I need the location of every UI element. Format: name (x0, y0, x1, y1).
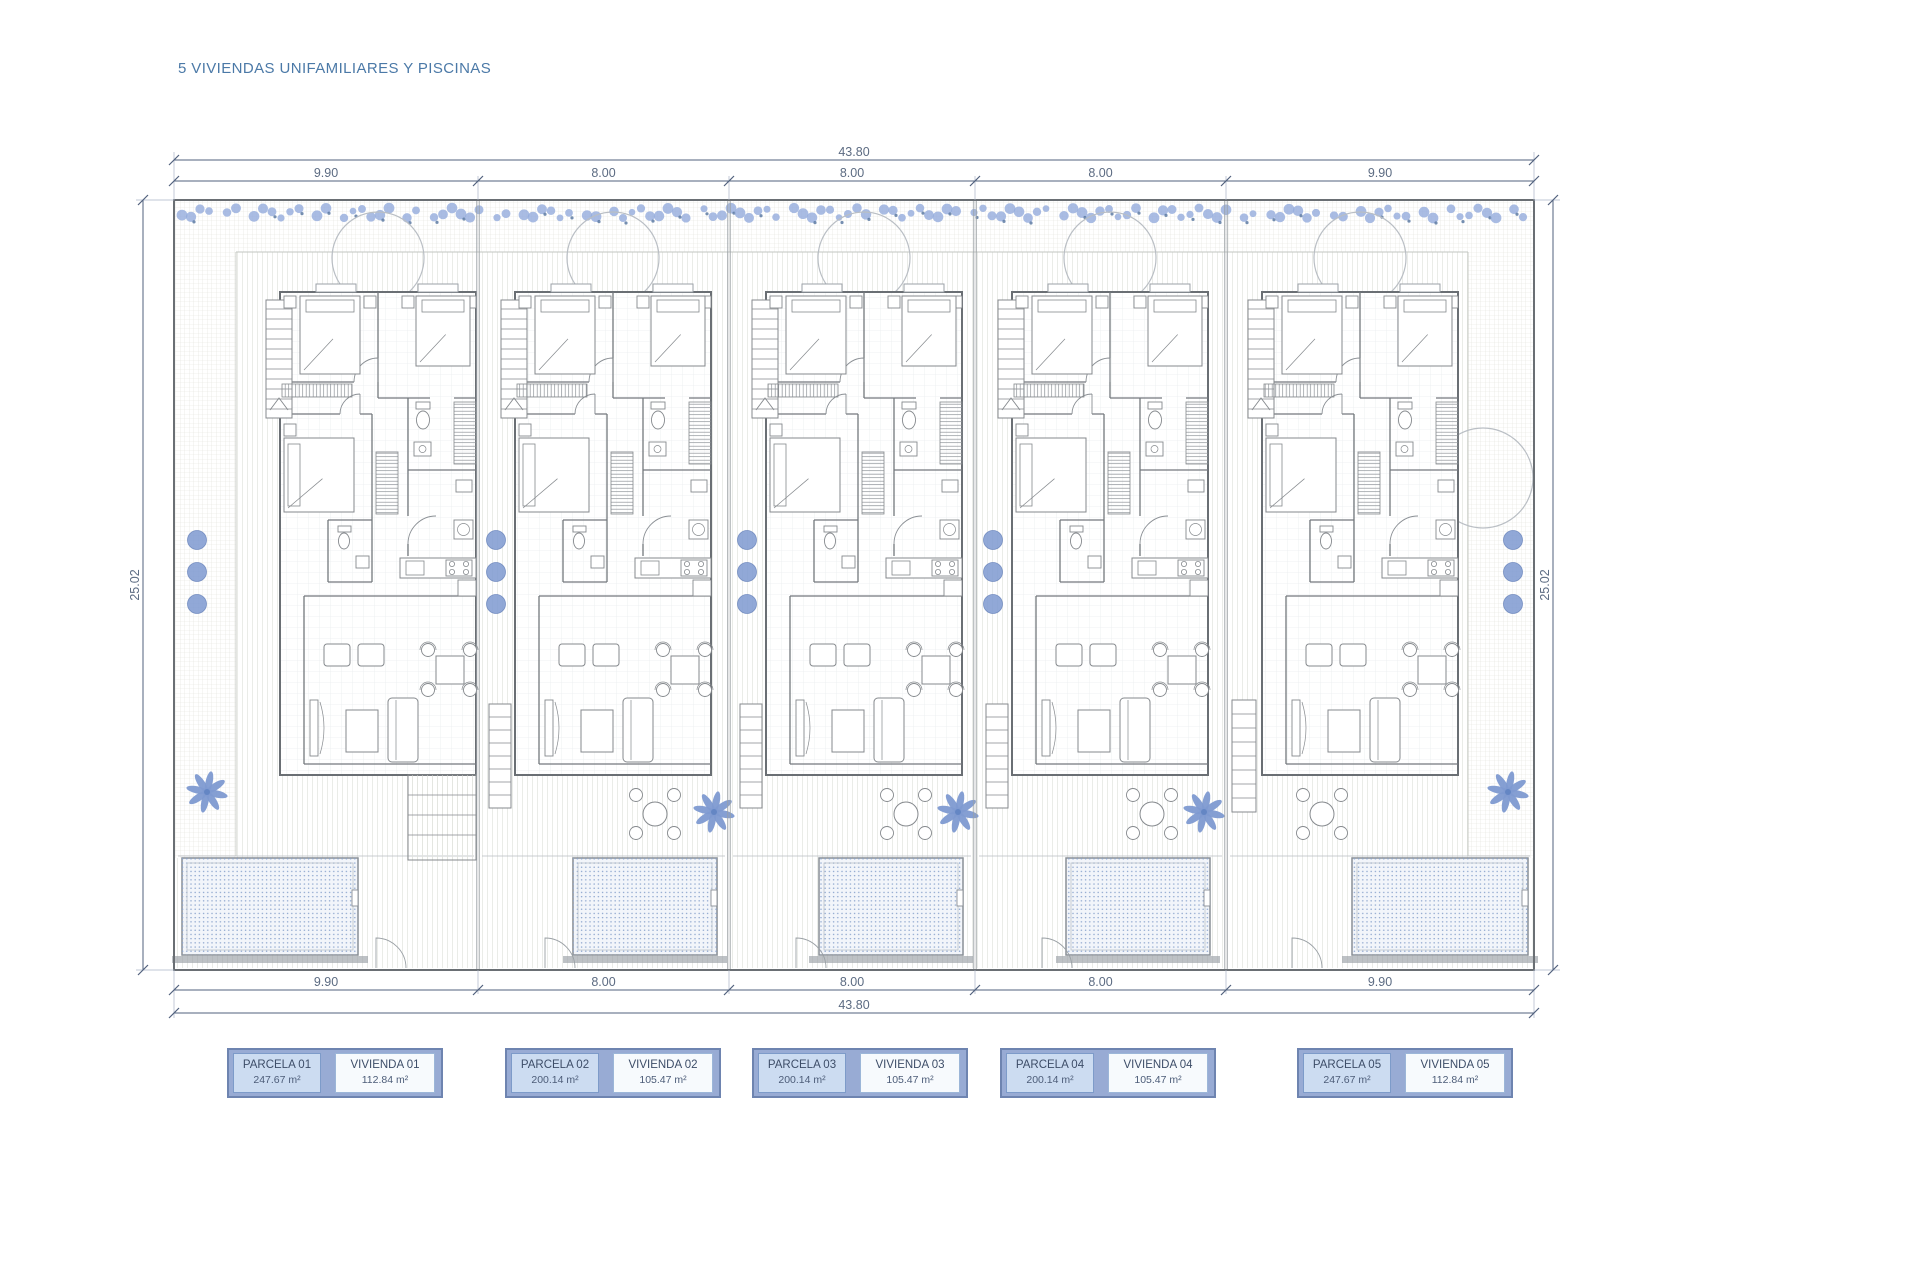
sink (1338, 556, 1351, 568)
chair (1196, 684, 1209, 697)
nightstand (1016, 296, 1028, 308)
chair (1404, 684, 1417, 697)
utility-sink (1438, 480, 1454, 492)
pool-ladder (711, 890, 717, 906)
tv-board (1042, 700, 1050, 756)
wardrobe (611, 452, 633, 514)
dimension-label: 25.02 (1538, 569, 1552, 600)
armchair (324, 644, 350, 666)
vivienda-03-area: 105.47 m² (861, 1074, 959, 1086)
staircase (1248, 300, 1274, 418)
wardrobe (940, 402, 962, 464)
nightstand (284, 296, 296, 308)
dimension-label: 9.90 (314, 166, 338, 180)
dining-table (1418, 656, 1446, 684)
wardrobe (768, 384, 838, 397)
bed (651, 296, 705, 366)
sink (414, 442, 431, 456)
sofa (1370, 698, 1400, 762)
toilet (1398, 402, 1412, 409)
sink (591, 556, 604, 568)
bed (786, 296, 846, 374)
dimension-label: 8.00 (1088, 975, 1112, 989)
washer (940, 520, 959, 539)
entry-steps (408, 775, 476, 860)
chair (657, 644, 670, 657)
nightstand (599, 296, 611, 308)
sink (649, 442, 666, 456)
sofa (388, 698, 418, 762)
armchair (810, 644, 836, 666)
bush-row-icon (984, 531, 1003, 614)
chair (950, 644, 963, 657)
vivienda-02-area: 105.47 m² (614, 1074, 712, 1086)
chair (422, 644, 435, 657)
pool-walkway (1056, 956, 1220, 963)
site-plan-page: 5 VIVIENDAS UNIFAMILIARES Y PISCINAS 43.… (0, 0, 1920, 1280)
parcela-01-box: PARCELA 01 247.67 m² (233, 1053, 321, 1093)
sofa (1120, 698, 1150, 762)
side-stairs (1232, 700, 1256, 812)
chair (1154, 684, 1167, 697)
chair (950, 684, 963, 697)
vivienda-02-box: VIVIENDA 02 105.47 m² (613, 1053, 713, 1093)
nightstand (1096, 296, 1108, 308)
wardrobe (1264, 384, 1334, 397)
tv-board (1292, 700, 1300, 756)
nightstand (770, 296, 782, 308)
chair (699, 684, 712, 697)
washer (1436, 520, 1455, 539)
utility-sink (691, 480, 707, 492)
armchair (559, 644, 585, 666)
vivienda-01-box: VIVIENDA 01 112.84 m² (335, 1053, 435, 1093)
bed (1016, 438, 1086, 512)
tv-board (310, 700, 318, 756)
bed (284, 438, 354, 512)
chair (464, 644, 477, 657)
parcela-04-label: PARCELA 04 (1007, 1059, 1093, 1071)
bed (1282, 296, 1342, 374)
sofa (623, 698, 653, 762)
parcela-05-box: PARCELA 05 247.67 m² (1303, 1053, 1391, 1093)
wardrobe (517, 384, 587, 397)
bed (519, 438, 589, 512)
nightstand (888, 296, 900, 308)
vivienda-02-label: VIVIENDA 02 (614, 1059, 712, 1071)
toilet (902, 402, 916, 409)
dining-table (1168, 656, 1196, 684)
pool-03 (809, 858, 973, 963)
nightstand (1016, 424, 1028, 436)
toilet (651, 402, 665, 409)
chair (1404, 644, 1417, 657)
sink (900, 442, 917, 456)
nightstand (1266, 296, 1278, 308)
nightstand (364, 296, 376, 308)
sink (356, 556, 369, 568)
dimension-label: 8.00 (591, 166, 615, 180)
parcela-05-label: PARCELA 05 (1304, 1059, 1390, 1071)
chair (908, 684, 921, 697)
armchair (1340, 644, 1366, 666)
toilet (824, 526, 837, 532)
coffee-table (1328, 710, 1360, 752)
vivienda-04-area: 105.47 m² (1109, 1074, 1207, 1086)
dimension-label: 8.00 (840, 166, 864, 180)
legend-group-03: PARCELA 03 200.14 m² VIVIENDA 03 105.47 … (752, 1048, 968, 1098)
utility-sink (1188, 480, 1204, 492)
sink (1088, 556, 1101, 568)
pool-04 (1056, 858, 1220, 963)
bush-row-icon (487, 531, 506, 614)
wardrobe (1358, 452, 1380, 514)
armchair (1306, 644, 1332, 666)
sink (1396, 442, 1413, 456)
toilet (1070, 526, 1083, 532)
parcela-02-label: PARCELA 02 (512, 1059, 598, 1071)
pool-ladder (957, 890, 963, 906)
dimension-label: 9.90 (1368, 975, 1392, 989)
dimension-label: 8.00 (591, 975, 615, 989)
pool-walkway (1342, 956, 1538, 963)
tv-board (796, 700, 804, 756)
nightstand (850, 296, 862, 308)
washer (689, 520, 708, 539)
parcela-05-area: 247.67 m² (1304, 1074, 1390, 1086)
washer (1186, 520, 1205, 539)
armchair (358, 644, 384, 666)
dining-table (436, 656, 464, 684)
chair (908, 644, 921, 657)
vivienda-05-label: VIVIENDA 05 (1406, 1059, 1504, 1071)
sink (842, 556, 855, 568)
nightstand (637, 296, 649, 308)
parcela-03-label: PARCELA 03 (759, 1059, 845, 1071)
dimension-label: 25.02 (128, 569, 142, 600)
dimension-label: 8.00 (1088, 166, 1112, 180)
pool-02 (563, 858, 727, 963)
plot-area (172, 200, 1538, 970)
nightstand (284, 424, 296, 436)
chair (1196, 644, 1209, 657)
wardrobe (282, 384, 352, 397)
parcela-03-box: PARCELA 03 200.14 m² (758, 1053, 846, 1093)
bed (1148, 296, 1202, 366)
vivienda-03-box: VIVIENDA 03 105.47 m² (860, 1053, 960, 1093)
nightstand (402, 296, 414, 308)
bush-row-icon (188, 531, 207, 614)
toilet (416, 402, 430, 409)
dimension-label: 9.90 (314, 975, 338, 989)
sofa (874, 698, 904, 762)
dimension-label: 43.80 (838, 145, 869, 159)
washer (454, 520, 473, 539)
pool-ladder (352, 890, 358, 906)
nightstand (519, 296, 531, 308)
bush-row-icon (738, 531, 757, 614)
bed (535, 296, 595, 374)
parcela-02-box: PARCELA 02 200.14 m² (511, 1053, 599, 1093)
vivienda-01-area: 112.84 m² (336, 1074, 434, 1086)
legend-group-05: PARCELA 05 247.67 m² VIVIENDA 05 112.84 … (1297, 1048, 1513, 1098)
wardrobe (862, 452, 884, 514)
armchair (1090, 644, 1116, 666)
utility-sink (456, 480, 472, 492)
pool-walkway (172, 956, 368, 963)
chair (464, 684, 477, 697)
bush-row-icon (1504, 531, 1523, 614)
sink (1146, 442, 1163, 456)
coffee-table (832, 710, 864, 752)
dimension-label: 8.00 (840, 975, 864, 989)
toilet (1320, 526, 1333, 532)
vivienda-05-box: VIVIENDA 05 112.84 m² (1405, 1053, 1505, 1093)
bed (1398, 296, 1452, 366)
legend-row: PARCELA 01 247.67 m² VIVIENDA 01 112.84 … (0, 1048, 1920, 1108)
vivienda-04-label: VIVIENDA 04 (1109, 1059, 1207, 1071)
parcela-04-area: 200.14 m² (1007, 1074, 1093, 1086)
parcela-04-box: PARCELA 04 200.14 m² (1006, 1053, 1094, 1093)
pool-walkway (809, 956, 973, 963)
chair (422, 684, 435, 697)
parcela-03-area: 200.14 m² (759, 1074, 845, 1086)
wardrobe (454, 402, 476, 464)
nightstand (1134, 296, 1146, 308)
staircase (501, 300, 527, 418)
vivienda-01-label: VIVIENDA 01 (336, 1059, 434, 1071)
bed (902, 296, 956, 366)
coffee-table (581, 710, 613, 752)
wardrobe (1186, 402, 1208, 464)
bed (416, 296, 470, 366)
parcela-02-area: 200.14 m² (512, 1074, 598, 1086)
staircase (998, 300, 1024, 418)
bed (1266, 438, 1336, 512)
chair (1154, 644, 1167, 657)
chair (1446, 644, 1459, 657)
dining-table (671, 656, 699, 684)
chair (657, 684, 670, 697)
coffee-table (1078, 710, 1110, 752)
toilet (338, 526, 351, 532)
toilet (573, 526, 586, 532)
nightstand (519, 424, 531, 436)
pool-ladder (1204, 890, 1210, 906)
armchair (1056, 644, 1082, 666)
armchair (593, 644, 619, 666)
utility-sink (942, 480, 958, 492)
dimension-label: 43.80 (838, 998, 869, 1012)
coffee-table (346, 710, 378, 752)
nightstand (770, 424, 782, 436)
parcela-01-label: PARCELA 01 (234, 1059, 320, 1071)
nightstand (1384, 296, 1396, 308)
pool-ladder (1522, 890, 1528, 906)
vivienda-05-area: 112.84 m² (1406, 1074, 1504, 1086)
side-stairs (986, 704, 1008, 808)
pool-01 (172, 858, 368, 963)
vivienda-03-label: VIVIENDA 03 (861, 1059, 959, 1071)
side-stairs (740, 704, 762, 808)
pool-05 (1342, 858, 1538, 963)
side-garden-right (1468, 200, 1534, 858)
wardrobe (1108, 452, 1130, 514)
chair (1446, 684, 1459, 697)
legend-group-04: PARCELA 04 200.14 m² VIVIENDA 04 105.47 … (1000, 1048, 1216, 1098)
toilet (1148, 402, 1162, 409)
side-garden-left (174, 200, 236, 858)
legend-group-01: PARCELA 01 247.67 m² VIVIENDA 01 112.84 … (227, 1048, 443, 1098)
wardrobe (376, 452, 398, 514)
armchair (844, 644, 870, 666)
bed (300, 296, 360, 374)
staircase (752, 300, 778, 418)
bed (1032, 296, 1092, 374)
side-stairs (489, 704, 511, 808)
nightstand (1346, 296, 1358, 308)
wardrobe (689, 402, 711, 464)
legend-group-02: PARCELA 02 200.14 m² VIVIENDA 02 105.47 … (505, 1048, 721, 1098)
bed (770, 438, 840, 512)
pool-walkway (563, 956, 727, 963)
nightstand (1266, 424, 1278, 436)
dimension-label: 9.90 (1368, 166, 1392, 180)
parcela-01-area: 247.67 m² (234, 1074, 320, 1086)
dining-table (922, 656, 950, 684)
wardrobe (1436, 402, 1458, 464)
chair (699, 644, 712, 657)
wardrobe (1014, 384, 1084, 397)
vivienda-04-box: VIVIENDA 04 105.47 m² (1108, 1053, 1208, 1093)
tv-board (545, 700, 553, 756)
staircase (266, 300, 292, 418)
